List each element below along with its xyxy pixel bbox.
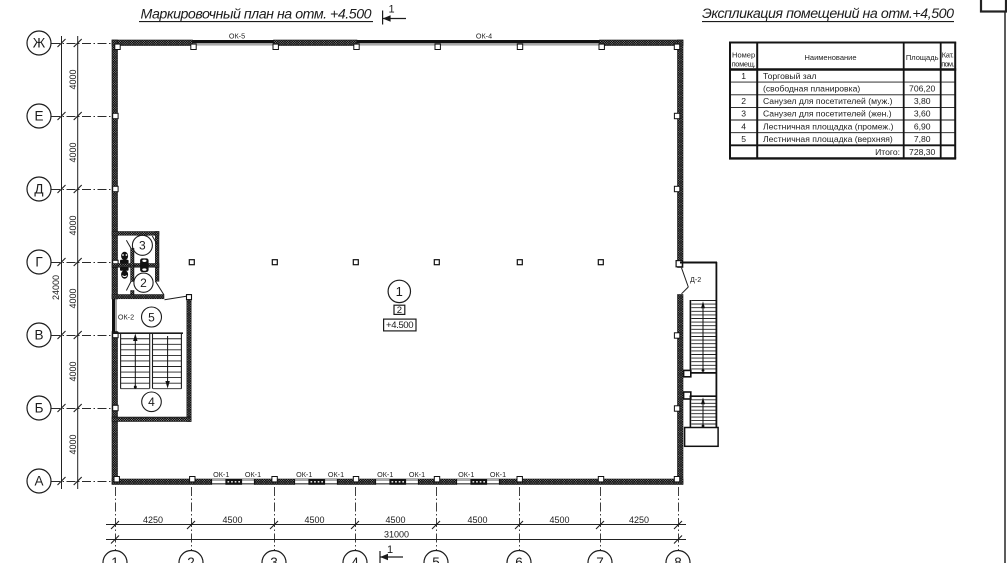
svg-text:1: 1	[387, 544, 393, 556]
svg-text:4500: 4500	[222, 515, 242, 525]
svg-text:4: 4	[351, 555, 359, 563]
svg-text:Санузел для посетителей (жен.): Санузел для посетителей (жен.)	[763, 109, 892, 119]
svg-text:Е: Е	[34, 109, 43, 124]
svg-text:Лестничная площадка (верхняя): Лестничная площадка (верхняя)	[763, 134, 893, 144]
svg-text:2: 2	[140, 276, 147, 290]
svg-text:Кат.: Кат.	[942, 51, 954, 60]
svg-text:1: 1	[396, 284, 403, 299]
svg-text:Наименование: Наименование	[805, 53, 857, 62]
svg-text:4500: 4500	[467, 515, 487, 525]
svg-text:ОК-5: ОК-5	[229, 32, 245, 41]
svg-text:3,60: 3,60	[914, 109, 931, 119]
svg-text:5: 5	[741, 134, 746, 144]
svg-text:ОК-1: ОК-1	[490, 470, 506, 479]
svg-text:Д: Д	[34, 182, 43, 197]
svg-text:7,80: 7,80	[914, 134, 931, 144]
svg-text:ОК-1: ОК-1	[245, 470, 261, 479]
svg-text:4000: 4000	[68, 215, 78, 235]
svg-text:ОК-1: ОК-1	[328, 470, 344, 479]
svg-text:2: 2	[397, 305, 402, 316]
svg-text:728,30: 728,30	[909, 147, 936, 157]
svg-text:3: 3	[139, 239, 146, 253]
svg-text:(свободная планировка): (свободная планировка)	[763, 84, 860, 94]
svg-text:Лестничная площадка (промеж.): Лестничная площадка (промеж.)	[763, 121, 894, 131]
svg-text:Б: Б	[35, 401, 44, 416]
svg-text:Санузел для посетителей (муж.): Санузел для посетителей (муж.)	[763, 96, 893, 106]
svg-text:1: 1	[111, 555, 119, 563]
svg-text:Площадь: Площадь	[906, 53, 939, 62]
svg-text:ОК-1: ОК-1	[296, 470, 312, 479]
svg-text:Итого:: Итого:	[875, 147, 900, 157]
svg-text:Маркировочный план на отм. +4.: Маркировочный план на отм. +4.500	[141, 7, 372, 23]
svg-text:4000: 4000	[68, 434, 78, 454]
svg-text:ОК-1: ОК-1	[377, 470, 393, 479]
svg-text:4500: 4500	[385, 515, 405, 525]
svg-text:706,20: 706,20	[909, 84, 936, 94]
svg-text:6: 6	[515, 555, 523, 563]
svg-text:8: 8	[674, 555, 682, 563]
svg-text:31000: 31000	[384, 529, 409, 539]
svg-text:Номер: Номер	[732, 51, 755, 60]
svg-text:А: А	[34, 474, 43, 489]
svg-text:Д-2: Д-2	[690, 275, 701, 284]
svg-text:1: 1	[741, 71, 746, 81]
svg-text:ОК-4: ОК-4	[476, 32, 492, 41]
svg-text:пом.: пом.	[941, 60, 954, 69]
svg-text:4250: 4250	[143, 515, 163, 525]
svg-text:4: 4	[741, 121, 746, 131]
svg-text:7: 7	[596, 555, 604, 563]
svg-text:Ж: Ж	[33, 36, 46, 51]
svg-text:4500: 4500	[304, 515, 324, 525]
svg-text:2: 2	[187, 555, 195, 563]
svg-text:5: 5	[432, 555, 440, 563]
svg-text:ОК-1: ОК-1	[409, 470, 425, 479]
svg-text:ОК-1: ОК-1	[213, 470, 229, 479]
svg-text:4000: 4000	[68, 361, 78, 381]
svg-text:2: 2	[741, 96, 746, 106]
svg-text:4500: 4500	[549, 515, 569, 525]
svg-text:3: 3	[270, 555, 278, 563]
svg-text:4000: 4000	[68, 69, 78, 89]
svg-text:3,80: 3,80	[914, 96, 931, 106]
svg-text:6,90: 6,90	[914, 121, 931, 131]
svg-text:Экспликация помещений на отм.+: Экспликация помещений на отм.+4,500	[702, 6, 954, 22]
svg-text:В: В	[34, 328, 43, 343]
svg-text:1: 1	[388, 4, 394, 16]
svg-text:4000: 4000	[68, 288, 78, 308]
svg-text:3: 3	[741, 109, 746, 119]
svg-text:4: 4	[148, 395, 155, 409]
svg-text:Торговый зал: Торговый зал	[763, 71, 817, 81]
svg-text:ОК-1: ОК-1	[458, 470, 474, 479]
svg-text:помещ.: помещ.	[732, 60, 756, 69]
svg-text:5: 5	[148, 310, 155, 324]
svg-text:4000: 4000	[68, 142, 78, 162]
svg-text:24000: 24000	[51, 275, 61, 300]
svg-text:4250: 4250	[629, 515, 649, 525]
svg-text:+4.500: +4.500	[386, 320, 414, 331]
svg-text:ОК-2: ОК-2	[118, 313, 134, 322]
svg-text:Г: Г	[35, 255, 43, 270]
